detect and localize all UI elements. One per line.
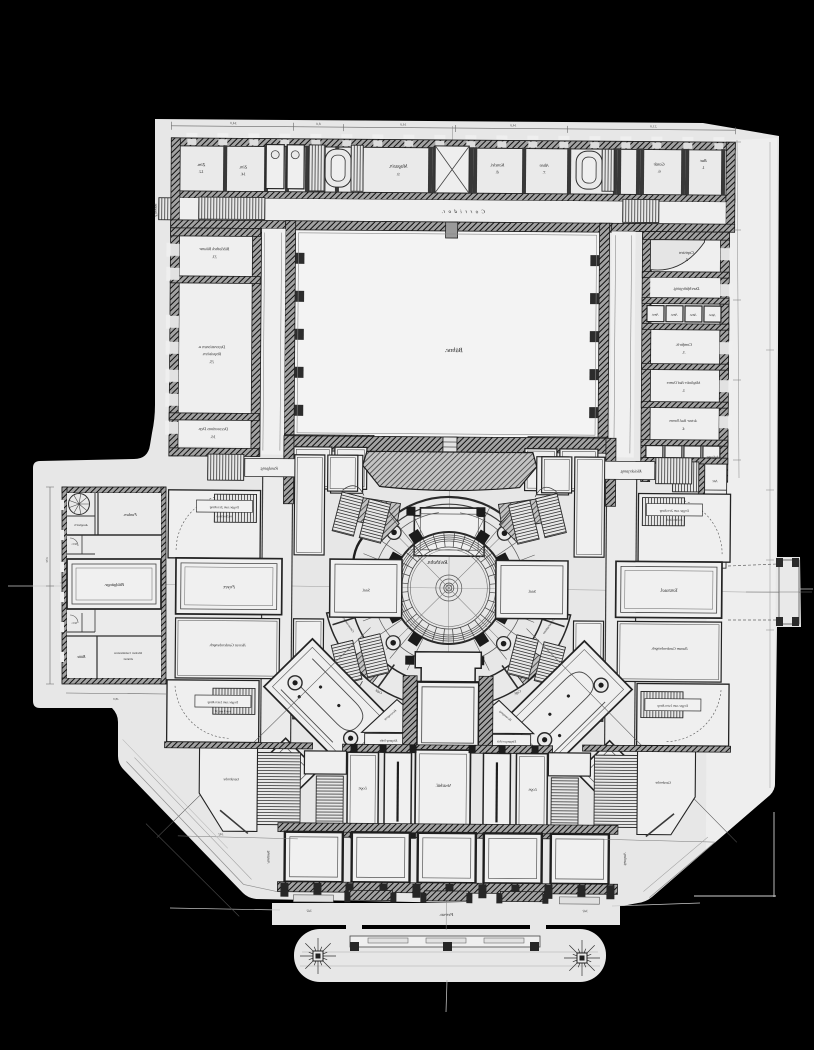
svg-text:Kleidergang.: Kleidergang.: [620, 468, 643, 473]
svg-text:W.C.: W.C.: [71, 542, 77, 546]
svg-text:Eingang rechts: Eingang rechts: [496, 739, 517, 743]
svg-text:Treppe zum 2ten Rang: Treppe zum 2ten Rang: [209, 505, 239, 509]
svg-text:2.: 2.: [685, 257, 688, 262]
svg-text:Saal.: Saal.: [362, 587, 370, 592]
svg-text:Zim.: Zim.: [239, 164, 247, 169]
svg-text:Funken.: Funken.: [123, 512, 138, 517]
svg-text:342: 342: [306, 909, 311, 913]
svg-text:Durchfahrgang.: Durchfahrgang.: [673, 286, 701, 291]
svg-text:Ausgang.: Ausgang.: [623, 852, 627, 867]
svg-text:Anr.: Anr.: [712, 479, 719, 483]
svg-text:Alten: Alten: [539, 163, 550, 168]
svg-text:Foyer.: Foyer.: [223, 585, 236, 590]
svg-text:Aufgang: Aufgang: [707, 455, 720, 459]
svg-text:Ausgleich: Ausgleich: [74, 523, 89, 527]
svg-text:Reitbahn.: Reitbahn.: [426, 560, 448, 566]
svg-text:Decorations Dep.: Decorations Dep.: [198, 426, 229, 431]
svg-text:9.: 9.: [396, 172, 399, 177]
svg-text:3.: 3.: [682, 350, 685, 355]
svg-text:Loge.: Loge.: [528, 787, 538, 792]
svg-text:Requisiten.: Requisiten.: [202, 351, 222, 356]
svg-text:5.: 5.: [682, 388, 685, 393]
svg-text:Bibliothek Räume: Bibliothek Räume: [199, 246, 229, 251]
svg-text:342: 342: [582, 909, 587, 913]
svg-text:Anst.: Anst.: [689, 313, 697, 317]
svg-text:12.: 12.: [198, 169, 203, 174]
svg-text:Damen Garderobengeb.: Damen Garderobengeb.: [651, 647, 689, 651]
svg-text:Anst.: Anst.: [670, 313, 678, 317]
svg-text:4.: 4.: [682, 426, 685, 431]
svg-text:Perron.: Perron.: [439, 912, 454, 917]
svg-text:13.: 13.: [212, 254, 217, 259]
svg-text:Vestibül.: Vestibül.: [435, 783, 451, 788]
svg-text:Copisten: Copisten: [679, 250, 694, 255]
svg-text:Treppe zum 1sten Rang: Treppe zum 1sten Rang: [657, 704, 688, 708]
svg-text:16.: 16.: [210, 434, 215, 439]
svg-text:Bätte.: Bätte.: [76, 655, 85, 659]
svg-text:Tanzsaal.: Tanzsaal.: [660, 589, 678, 594]
svg-text:Garde: Garde: [654, 162, 665, 167]
svg-text:Treppe zum 2ten Rang: Treppe zum 2ten Rang: [659, 509, 689, 513]
svg-text:1.: 1.: [702, 165, 705, 170]
svg-text:Comforts.: Comforts.: [675, 342, 692, 347]
svg-text:Eingang links: Eingang links: [379, 738, 398, 742]
svg-text:Ausgang.: Ausgang.: [267, 850, 271, 865]
svg-text:C o r r i d o r.: C o r r i d o r.: [440, 209, 485, 215]
svg-text:W.C.: W.C.: [71, 621, 77, 625]
svg-text:Treppe zum 1sten Rang: Treppe zum 1sten Rang: [207, 700, 238, 704]
svg-text:Garderobe: Garderobe: [223, 777, 239, 781]
svg-text:15.: 15.: [209, 359, 214, 364]
svg-text:8.: 8.: [495, 169, 498, 174]
svg-text:zimmer.: zimmer.: [123, 657, 134, 661]
svg-text:Saal.: Saal.: [528, 589, 536, 594]
svg-text:Decorationen u.: Decorationen u.: [198, 344, 226, 349]
svg-text:Mitglieder Bad Dames: Mitglieder Bad Dames: [666, 381, 701, 385]
svg-text:Bildgänge.: Bildgänge.: [104, 582, 124, 587]
svg-text:von 9 und 34: von 9 und 34: [215, 709, 231, 713]
svg-text:Eingang.: Eingang.: [154, 203, 158, 218]
svg-text:7.: 7.: [542, 170, 545, 175]
svg-text:Garderobe: Garderobe: [655, 781, 671, 785]
svg-text:14.: 14.: [240, 171, 245, 176]
svg-text:Kanzlei.: Kanzlei.: [490, 162, 506, 167]
svg-text:6.: 6.: [658, 169, 661, 174]
svg-text:Kleinen Commissions: Kleinen Commissions: [113, 651, 142, 655]
svg-text:342: 342: [218, 832, 223, 836]
svg-text:Rundgang.: Rundgang.: [260, 466, 279, 471]
svg-text:Herren Garderobengeb.: Herren Garderobengeb.: [209, 643, 247, 647]
svg-text:Anst.: Anst.: [651, 313, 659, 317]
svg-text:im 2ten Stock: im 2ten Stock: [666, 518, 683, 522]
svg-text:Loge.: Loge.: [358, 785, 368, 790]
svg-text:Acteur Bad Dames: Acteur Bad Dames: [669, 419, 698, 423]
svg-text:Bühne.: Bühne.: [444, 347, 463, 354]
svg-text:im 2ten Stock: im 2ten Stock: [216, 514, 233, 518]
svg-text:Bur.: Bur.: [700, 158, 707, 163]
svg-text:Anst.: Anst.: [708, 313, 716, 317]
svg-text:Zim.: Zim.: [197, 162, 205, 167]
svg-text:Magazin.: Magazin.: [389, 165, 409, 170]
